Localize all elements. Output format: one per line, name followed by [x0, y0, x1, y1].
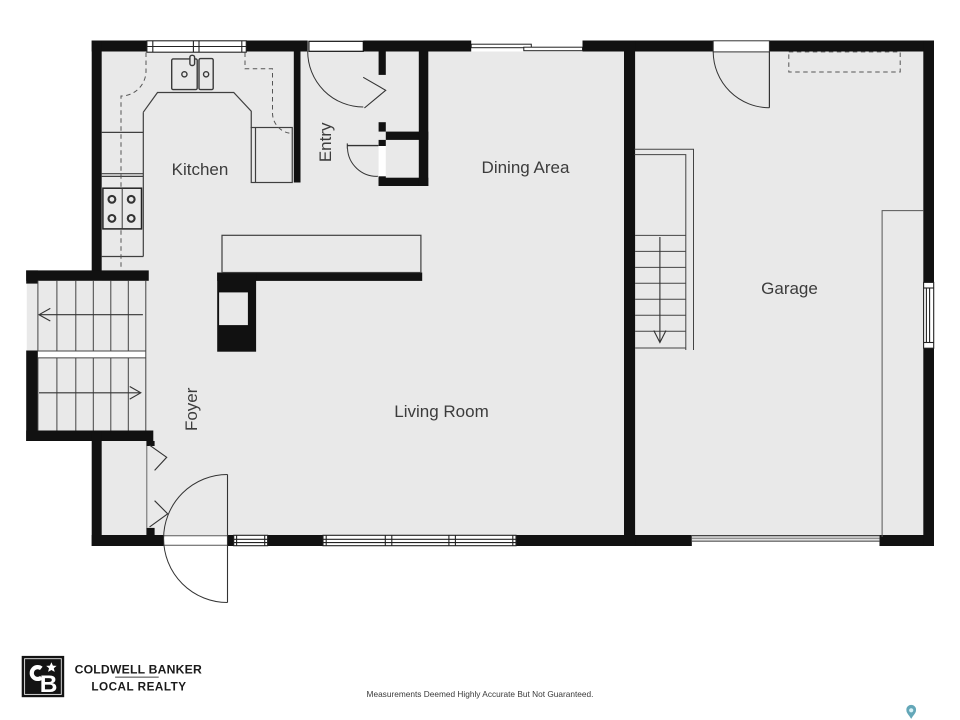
svg-text:Garage: Garage [761, 279, 818, 298]
svg-text:Living Room: Living Room [394, 402, 489, 421]
svg-text:B: B [40, 671, 58, 698]
svg-text:Entry: Entry [316, 122, 335, 162]
svg-text:Dining Area: Dining Area [482, 158, 570, 177]
svg-text:LOCAL REALTY: LOCAL REALTY [91, 681, 186, 694]
svg-text:Kitchen: Kitchen [172, 160, 229, 179]
svg-text:Measurements Deemed Highly Acc: Measurements Deemed Highly Accurate But … [367, 689, 594, 699]
svg-text:COLDWELL BANKER: COLDWELL BANKER [75, 663, 202, 677]
svg-text:Foyer: Foyer [182, 387, 201, 431]
